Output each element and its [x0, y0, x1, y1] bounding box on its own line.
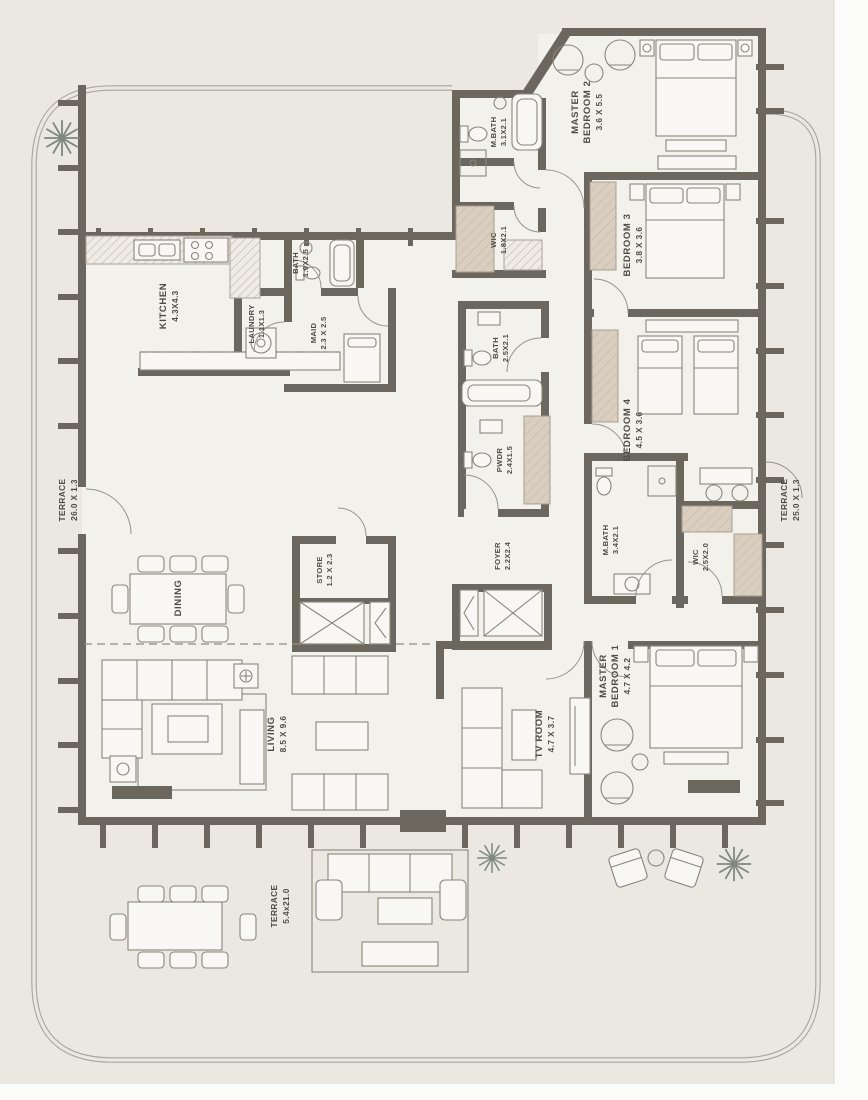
- svg-text:3.1X2.1: 3.1X2.1: [499, 117, 508, 146]
- bed-bench: [664, 752, 728, 764]
- nightstand: [726, 184, 740, 200]
- floor-plan-page: TERRACE 26.0 X 1.3 TERRACE 25.0 X 1.3 TE…: [0, 0, 868, 1100]
- svg-text:BEDROOM 3: BEDROOM 3: [622, 214, 633, 277]
- svg-text:2.5X2.0: 2.5X2.0: [701, 543, 710, 571]
- hall-wardrobe: [524, 416, 550, 504]
- svg-text:1.8X2.1: 1.8X2.1: [499, 225, 508, 254]
- vanity-desk: [700, 468, 752, 484]
- chair: [202, 952, 228, 968]
- room-label-laundry: LAUNDRY 1.1X1.3: [247, 305, 266, 344]
- sofa: [292, 656, 388, 694]
- chair: [110, 914, 126, 940]
- media-unit: [688, 780, 740, 793]
- svg-text:1.9X2.5: 1.9X2.5: [301, 248, 310, 277]
- svg-text:TERRACE: TERRACE: [779, 478, 789, 521]
- svg-text:BATH: BATH: [491, 337, 500, 359]
- outdoor-table: [362, 942, 438, 966]
- room-label-bath-top: BATH 1.9X2.5: [291, 248, 310, 277]
- svg-text:TERRACE: TERRACE: [57, 478, 67, 521]
- outdoor-coffee-table: [378, 898, 432, 924]
- sofa: [292, 774, 388, 810]
- svg-text:4.3X4.3: 4.3X4.3: [170, 290, 180, 321]
- chair: [170, 886, 196, 902]
- maid-fittings: [344, 334, 380, 382]
- svg-text:3.8 X 3.6: 3.8 X 3.6: [634, 227, 644, 264]
- bedroom-3-furniture: [590, 182, 740, 278]
- wardrobe: [590, 182, 616, 270]
- outdoor-dining-table: [128, 902, 222, 950]
- svg-text:BATH: BATH: [291, 252, 300, 274]
- svg-text:FOYER: FOYER: [493, 542, 502, 570]
- svg-text:DINING: DINING: [173, 580, 184, 617]
- chair: [138, 952, 164, 968]
- room-label-foyer: FOYER 2.2X2.4: [493, 541, 512, 570]
- media-unit: [112, 786, 172, 799]
- toilet: [596, 468, 612, 476]
- svg-text:LIVING: LIVING: [266, 716, 277, 751]
- svg-text:2.2X2.4: 2.2X2.4: [503, 541, 512, 570]
- lift-block-1: [300, 602, 390, 644]
- svg-text:MAID: MAID: [309, 322, 318, 343]
- page-margin-bottom: [0, 1084, 868, 1100]
- chair: [228, 585, 244, 613]
- floor-plan-drawing: TERRACE 26.0 X 1.3 TERRACE 25.0 X 1.3 TE…: [0, 0, 868, 1100]
- toilet: [464, 350, 472, 366]
- svg-text:MASTER: MASTER: [598, 654, 609, 698]
- svg-text:LAUNDRY: LAUNDRY: [247, 305, 256, 344]
- side-table: [512, 710, 536, 760]
- svg-text:M.BATH: M.BATH: [601, 525, 610, 556]
- svg-text:5.4x21.0: 5.4x21.0: [281, 888, 291, 924]
- kitchen-island: [140, 352, 340, 370]
- nightstand: [640, 40, 654, 56]
- svg-text:WIC: WIC: [489, 232, 498, 248]
- chair: [202, 556, 228, 572]
- chair: [240, 914, 256, 940]
- svg-text:KITCHEN: KITCHEN: [158, 283, 169, 329]
- wardrobe: [592, 330, 618, 422]
- svg-text:4.7 X 4.2: 4.7 X 4.2: [622, 658, 632, 695]
- svg-text:BEDROOM 2: BEDROOM 2: [582, 81, 593, 144]
- svg-text:BEDROOM 1: BEDROOM 1: [610, 644, 621, 707]
- lift-block-2: [460, 590, 542, 636]
- svg-text:3.6 X 5.5: 3.6 X 5.5: [594, 94, 604, 131]
- nightstand: [634, 646, 648, 662]
- svg-text:BEDROOM 4: BEDROOM 4: [622, 398, 633, 461]
- nightstand: [738, 40, 752, 56]
- svg-text:M.BATH: M.BATH: [489, 117, 498, 148]
- outdoor-sofa: [328, 854, 452, 892]
- chair: [138, 556, 164, 572]
- svg-text:4.7 X 3.7: 4.7 X 3.7: [546, 716, 556, 753]
- sink: [478, 312, 500, 325]
- console: [646, 320, 738, 332]
- svg-text:25.0 X 1.3: 25.0 X 1.3: [791, 479, 801, 521]
- lift-shaft: [370, 602, 390, 644]
- chair: [138, 626, 164, 642]
- chair: [112, 585, 128, 613]
- side-table: [110, 756, 136, 782]
- chair: [170, 556, 196, 572]
- room-label-master-bath-1: M.BATH 3.4X2.1: [601, 525, 620, 556]
- sofa: [462, 688, 502, 808]
- dresser: [658, 156, 736, 169]
- outdoor-chair: [440, 880, 466, 920]
- toilet: [464, 452, 472, 468]
- svg-text:26.0 X 1.3: 26.0 X 1.3: [69, 479, 79, 521]
- coffee-table: [168, 716, 208, 742]
- svg-text:PWDR: PWDR: [495, 448, 504, 473]
- svg-text:MASTER: MASTER: [570, 90, 581, 134]
- tv-console: [570, 698, 590, 774]
- room-label-dining: DINING: [173, 580, 184, 617]
- toilet: [460, 126, 468, 142]
- nightstand: [630, 184, 644, 200]
- chair: [202, 626, 228, 642]
- outdoor-chair: [316, 880, 342, 920]
- kitchen-cabinet: [230, 238, 260, 298]
- svg-text:2.5X2.1: 2.5X2.1: [501, 333, 510, 362]
- svg-text:TV ROOM: TV ROOM: [534, 710, 545, 759]
- room-label-bath-mid: BATH 2.5X2.1: [491, 333, 510, 362]
- chair: [170, 952, 196, 968]
- svg-text:WIC: WIC: [691, 549, 700, 565]
- svg-text:4.5 X 3.6: 4.5 X 3.6: [634, 412, 644, 449]
- kitchen-sink: [134, 240, 180, 260]
- bed-bench: [666, 140, 726, 151]
- svg-text:STORE: STORE: [315, 556, 324, 584]
- svg-text:TERRACE: TERRACE: [269, 884, 279, 927]
- page-margin-right: [834, 0, 868, 1100]
- chair: [138, 886, 164, 902]
- svg-text:3.4X2.1: 3.4X2.1: [611, 525, 620, 554]
- svg-text:1.2 X 2.3: 1.2 X 2.3: [325, 553, 334, 586]
- room-label-store: STORE 1.2 X 2.3: [315, 553, 334, 586]
- sink: [480, 420, 502, 433]
- chair: [170, 626, 196, 642]
- sofa: [502, 770, 542, 808]
- svg-text:8.5 X 9.6: 8.5 X 9.6: [278, 716, 288, 753]
- room-label-master-bath-2: M.BATH 3.1X2.1: [489, 117, 508, 148]
- svg-text:1.1X1.3: 1.1X1.3: [257, 310, 266, 338]
- coffee-table: [316, 722, 368, 750]
- console: [240, 710, 264, 784]
- room-label-powder: PWDR 2.4X1.5: [495, 445, 514, 474]
- svg-text:2.3 X 2.5: 2.3 X 2.5: [319, 316, 328, 350]
- lift-shaft: [460, 590, 478, 636]
- svg-text:2.4X1.5: 2.4X1.5: [505, 445, 514, 474]
- nightstand: [744, 646, 758, 662]
- chair: [202, 886, 228, 902]
